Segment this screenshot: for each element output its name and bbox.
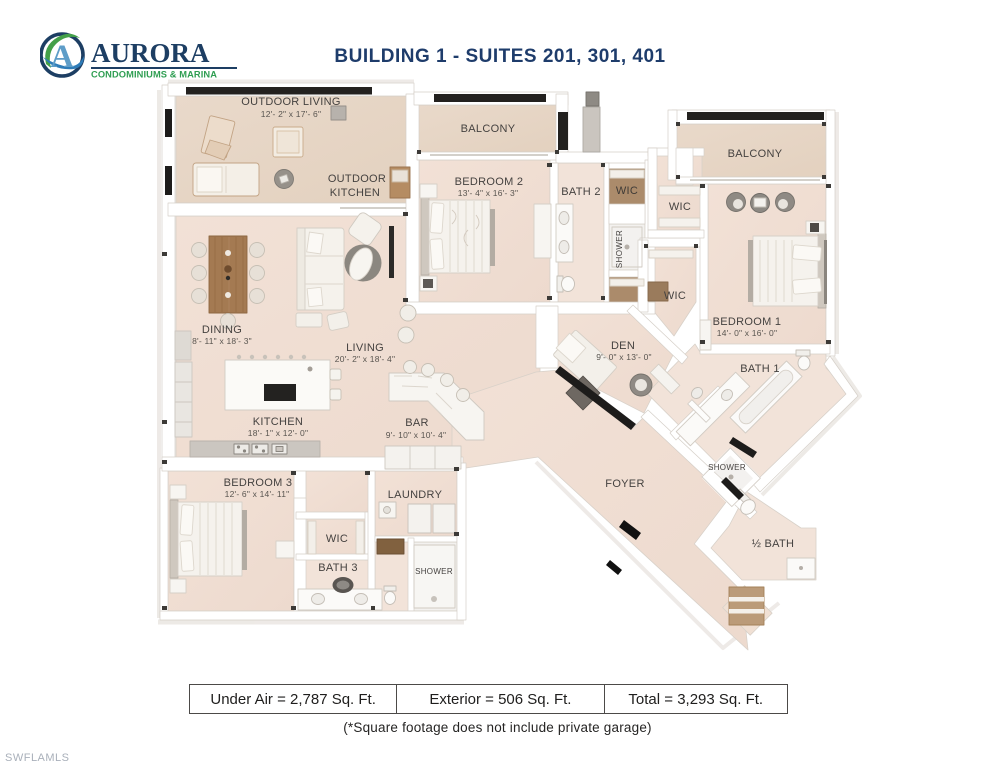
svg-text:BALCONY: BALCONY bbox=[728, 148, 783, 160]
svg-text:BATH 1: BATH 1 bbox=[740, 363, 780, 375]
svg-text:KITCHEN: KITCHEN bbox=[253, 416, 303, 428]
svg-text:½ BATH: ½ BATH bbox=[752, 538, 795, 550]
svg-text:12'- 6" x 14'- 11": 12'- 6" x 14'- 11" bbox=[225, 489, 290, 499]
svg-text:KITCHEN: KITCHEN bbox=[330, 187, 380, 199]
svg-text:SHOWER: SHOWER bbox=[708, 463, 746, 472]
svg-text:DINING: DINING bbox=[202, 324, 242, 336]
svg-text:20'- 2" x 18'- 4": 20'- 2" x 18'- 4" bbox=[335, 354, 395, 364]
svg-text:13'- 4" x 16'- 3": 13'- 4" x 16'- 3" bbox=[458, 188, 518, 198]
svg-text:BEDROOM 3: BEDROOM 3 bbox=[224, 477, 293, 489]
svg-text:BEDROOM 1: BEDROOM 1 bbox=[713, 316, 782, 328]
svg-text:12'- 2" x 17'- 6": 12'- 2" x 17'- 6" bbox=[261, 109, 321, 119]
svg-text:BATH 2: BATH 2 bbox=[561, 186, 601, 198]
svg-text:BATH 3: BATH 3 bbox=[318, 562, 358, 574]
svg-text:BEDROOM 2: BEDROOM 2 bbox=[455, 176, 524, 188]
svg-text:9'- 0" x 13'- 0": 9'- 0" x 13'- 0" bbox=[596, 352, 651, 362]
svg-text:WIC: WIC bbox=[616, 185, 638, 197]
svg-text:OUTDOOR: OUTDOOR bbox=[328, 173, 386, 185]
svg-text:LAUNDRY: LAUNDRY bbox=[388, 489, 443, 501]
svg-text:LIVING: LIVING bbox=[346, 342, 384, 354]
svg-text:SHOWER: SHOWER bbox=[415, 567, 453, 576]
svg-text:SHOWER: SHOWER bbox=[615, 230, 624, 268]
svg-text:FOYER: FOYER bbox=[605, 478, 644, 490]
svg-text:DEN: DEN bbox=[611, 340, 635, 352]
svg-text:BALCONY: BALCONY bbox=[461, 123, 516, 135]
svg-text:WIC: WIC bbox=[664, 290, 686, 302]
svg-text:14'- 0" x 16'- 0": 14'- 0" x 16'- 0" bbox=[717, 328, 777, 338]
svg-text:WIC: WIC bbox=[669, 201, 691, 213]
svg-text:BAR: BAR bbox=[405, 417, 429, 429]
svg-text:OUTDOOR LIVING: OUTDOOR LIVING bbox=[241, 96, 341, 108]
svg-text:18'- 1" x 12'- 0": 18'- 1" x 12'- 0" bbox=[248, 428, 308, 438]
svg-text:9'- 10" x 10'- 4": 9'- 10" x 10'- 4" bbox=[386, 430, 446, 440]
svg-text:WIC: WIC bbox=[326, 533, 348, 545]
svg-text:8'- 11" x 18'- 3": 8'- 11" x 18'- 3" bbox=[192, 336, 252, 346]
